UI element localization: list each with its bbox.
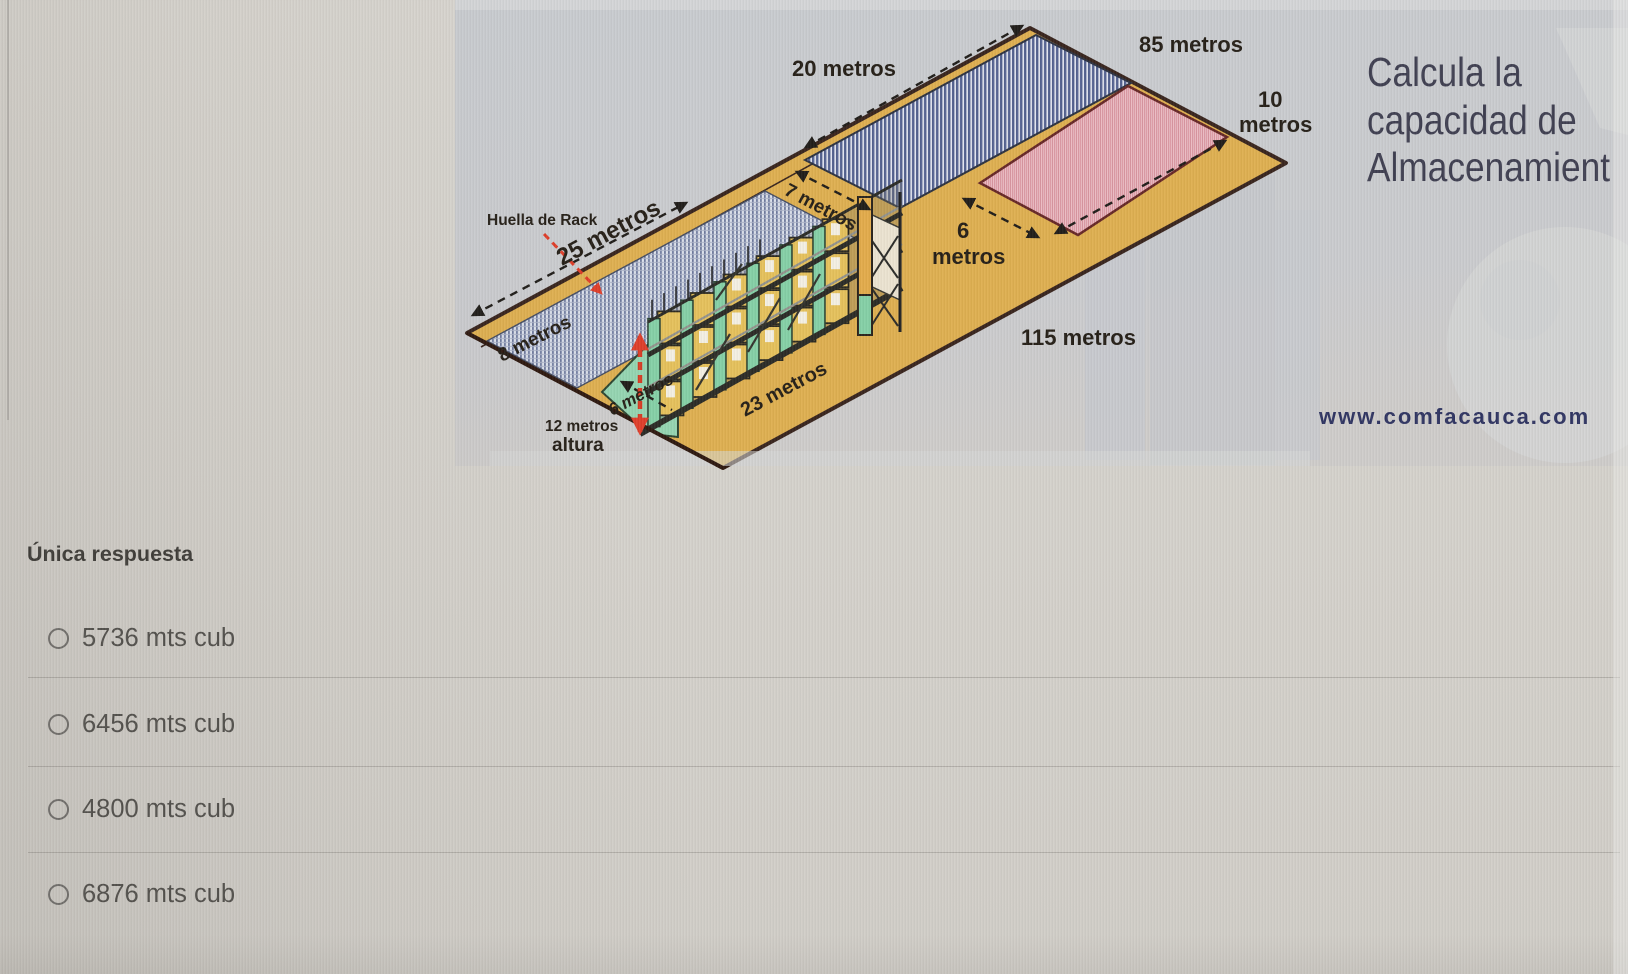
svg-text:metros: metros — [932, 244, 1005, 269]
svg-text:85 metros: 85 metros — [1139, 32, 1243, 57]
svg-text:6: 6 — [957, 218, 969, 243]
svg-text:20 metros: 20 metros — [792, 56, 896, 81]
svg-text:Huella de Rack: Huella de Rack — [487, 212, 598, 229]
svg-text:12 metros: 12 metros — [545, 418, 618, 435]
svg-text:10: 10 — [1258, 87, 1282, 112]
svg-text:115 metros: 115 metros — [1021, 325, 1136, 350]
svg-text:altura: altura — [552, 435, 604, 456]
svg-text:metros: metros — [1239, 112, 1312, 137]
